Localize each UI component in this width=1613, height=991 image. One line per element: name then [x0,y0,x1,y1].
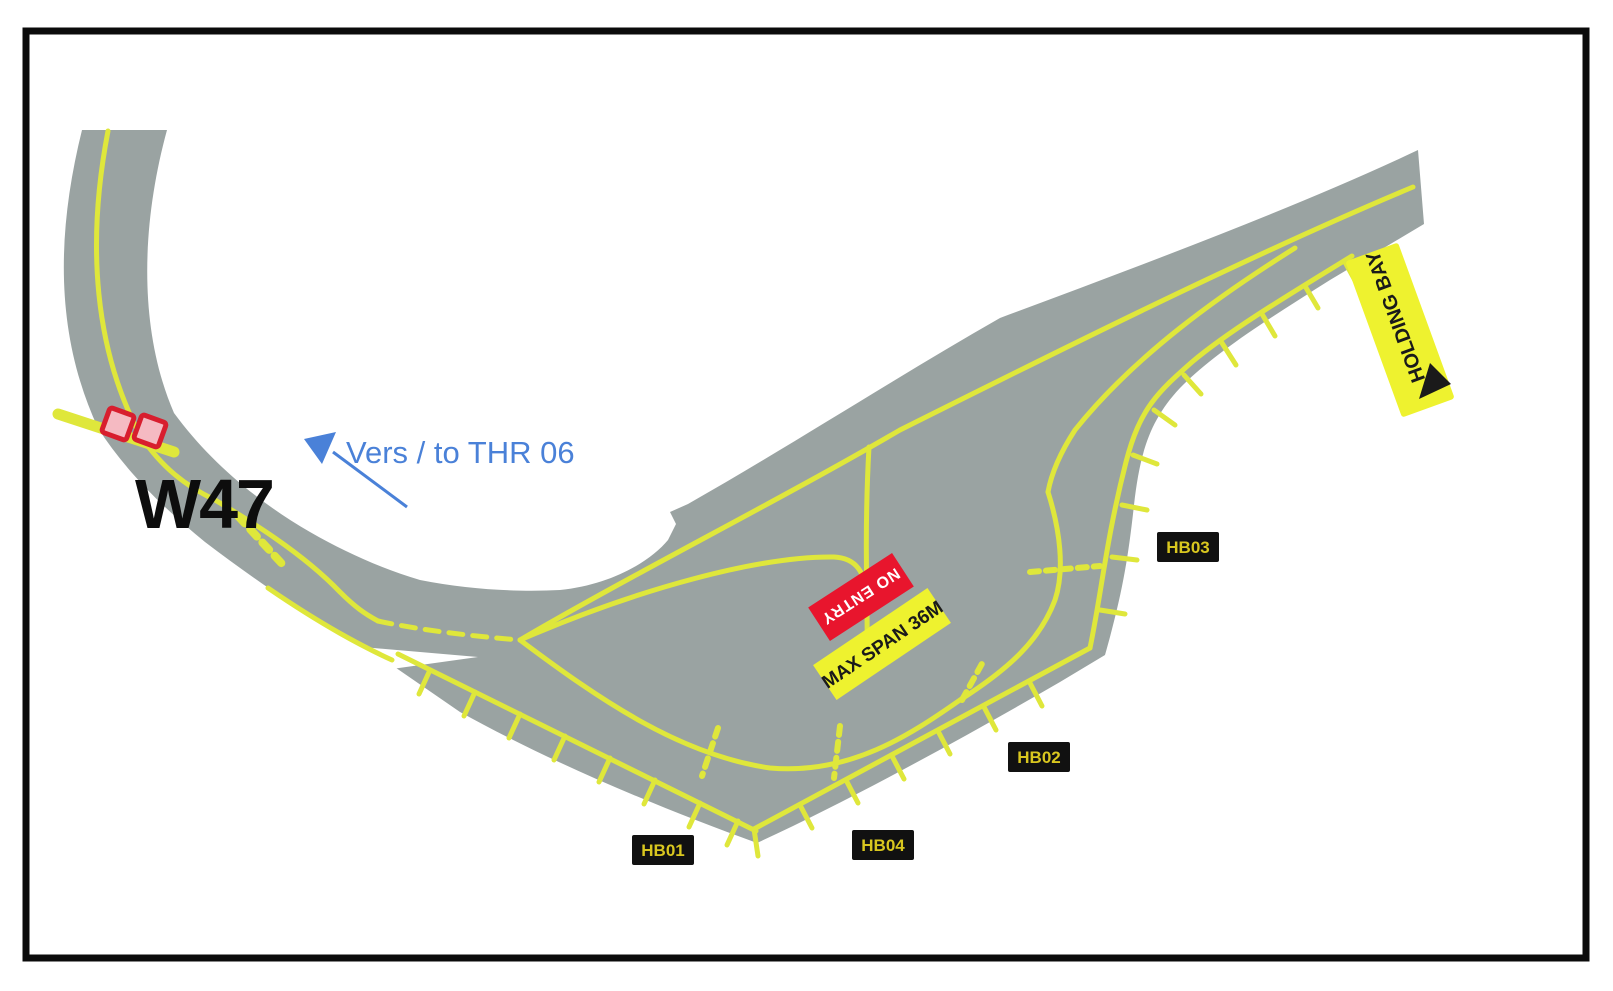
hb03-label-text: HB03 [1166,538,1209,557]
holding-bay-diagram: W47 Vers / to THR 06 NO ENTRY MAX SPAN 3… [0,0,1613,991]
hb01-label-text: HB01 [641,841,684,860]
holding-bay-diagram-page: W47 Vers / to THR 06 NO ENTRY MAX SPAN 3… [0,0,1613,991]
hb04-label: HB04 [852,830,914,860]
guard-light-icon [101,407,134,440]
hb03-label: HB03 [1157,532,1219,562]
holding-loop-stem-centerline [866,447,869,656]
hb02-label-text: HB02 [1017,748,1060,767]
hb04-label-text: HB04 [861,836,905,855]
taxiway-designator-w47: W47 [135,465,273,543]
guard-light-icon [133,414,166,447]
thr06-direction-note: Vers / to THR 06 [346,435,575,470]
hb02-label: HB02 [1008,742,1070,772]
hb01-label: HB01 [632,835,694,865]
